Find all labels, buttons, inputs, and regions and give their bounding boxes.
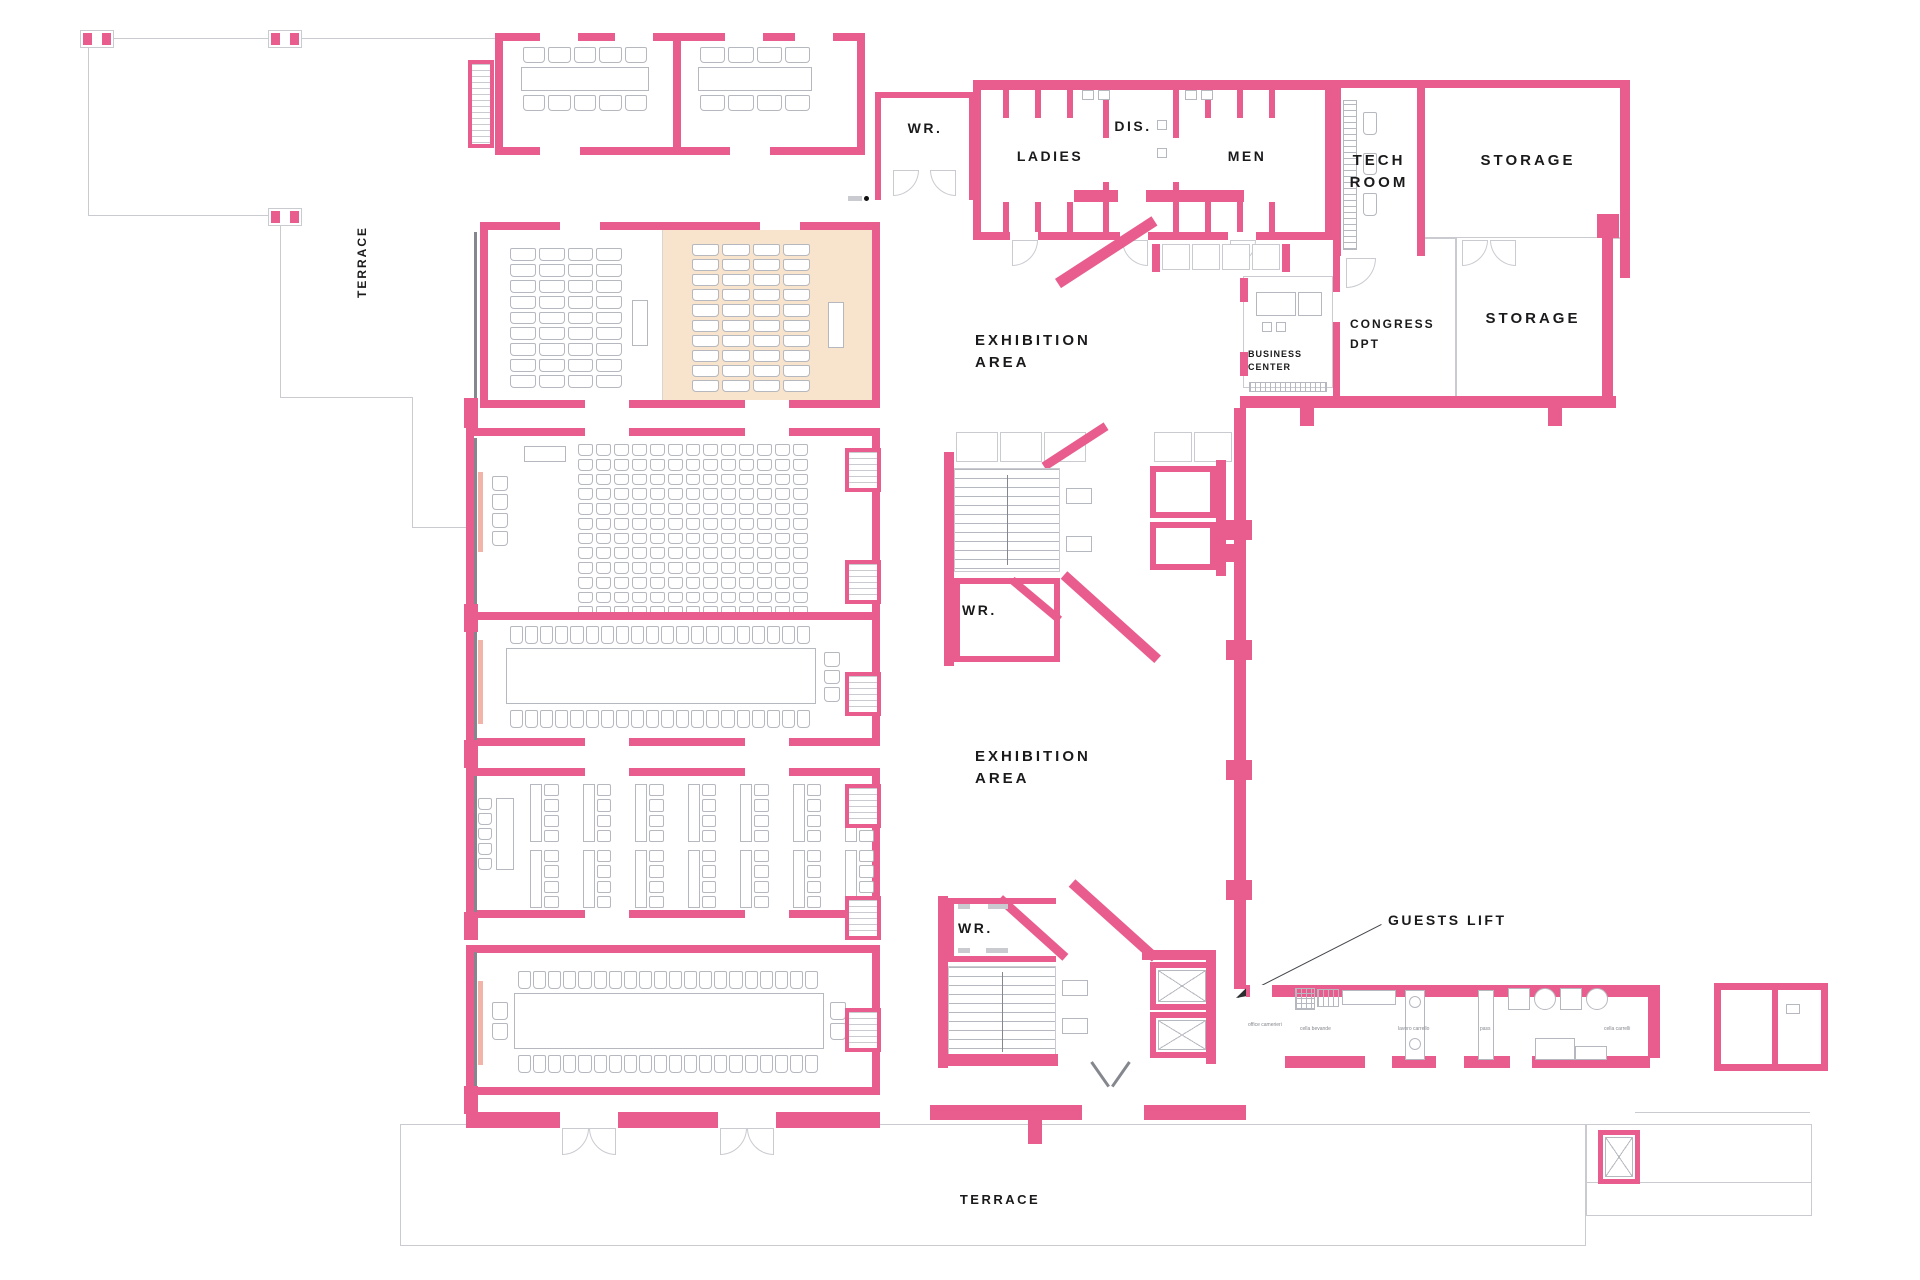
shape [859, 830, 874, 842]
desk-group [530, 784, 559, 842]
shape [649, 815, 664, 827]
wall-opening [745, 428, 789, 436]
wall-segment [464, 604, 478, 632]
shape [596, 562, 611, 574]
shape [703, 592, 718, 604]
shape [650, 533, 665, 545]
storage-right-label: STORAGE [1458, 308, 1608, 330]
shape [596, 518, 611, 530]
shape [785, 95, 810, 111]
service-niche [845, 560, 881, 604]
window-wall [474, 438, 477, 624]
shape: TECH [1333, 150, 1425, 172]
accent-strip [478, 640, 483, 724]
shape [767, 710, 780, 728]
shape [614, 503, 629, 515]
chair-row [518, 1055, 818, 1073]
elevator-shaft [1150, 466, 1216, 518]
shape [760, 971, 773, 989]
shape [807, 850, 822, 908]
shape [578, 577, 593, 589]
shape [692, 259, 719, 271]
chair-column [824, 652, 840, 702]
shape [646, 710, 659, 728]
shape [783, 289, 810, 301]
shape [649, 799, 664, 811]
shape [632, 474, 647, 486]
shape [859, 881, 874, 893]
shape [510, 343, 536, 356]
shape [631, 626, 644, 644]
wall-segment [1648, 997, 1660, 1058]
desk-band [530, 784, 874, 842]
desk-group [740, 850, 769, 908]
shape [767, 626, 780, 644]
shape [583, 850, 595, 908]
shape [650, 547, 665, 559]
desk-group [688, 784, 717, 842]
ladies-label: LADIES [1000, 146, 1100, 166]
shape [706, 710, 719, 728]
shape [614, 547, 629, 559]
terrace-edge [280, 215, 281, 398]
shape [599, 95, 621, 111]
shape [782, 710, 795, 728]
shape: EXHIBITION [975, 330, 1091, 352]
shape [614, 518, 629, 530]
room-wr-mid [954, 578, 1060, 662]
shape [702, 830, 717, 842]
elevator-guest-1 [1150, 962, 1214, 1010]
wall-segment [1142, 950, 1216, 960]
shape [688, 784, 700, 842]
shape [650, 577, 665, 589]
shape [539, 248, 565, 261]
shape [807, 799, 822, 811]
shape [703, 562, 718, 574]
shape [271, 211, 280, 223]
wall-segment [944, 452, 954, 666]
shape [596, 488, 611, 500]
gray-line [958, 948, 970, 953]
shape [728, 47, 753, 63]
shape [597, 784, 612, 796]
shape [721, 488, 736, 500]
wall-opening [585, 400, 629, 408]
floor-plan: TERRACE TERRACE [0, 0, 1920, 1280]
shape [609, 1055, 622, 1073]
exhibition-lower-label: EXHIBITIONAREA [975, 746, 1091, 790]
shape [722, 335, 749, 347]
terrace-edge [1635, 1112, 1810, 1113]
lobby-table [1066, 488, 1092, 504]
shape [700, 95, 725, 111]
shape [544, 850, 559, 862]
shape [775, 518, 790, 530]
shape [649, 865, 664, 877]
shape [597, 881, 612, 893]
shape [596, 264, 622, 277]
lectern [828, 302, 844, 348]
wall-stub [1028, 1120, 1042, 1144]
wall-opening [725, 33, 763, 41]
shape [632, 533, 647, 545]
shape [785, 47, 810, 63]
shape [510, 312, 536, 325]
terrace-edge [280, 397, 413, 398]
shape [523, 47, 545, 63]
shape [544, 830, 559, 842]
wall-segment [1035, 88, 1041, 118]
shape [654, 1055, 667, 1073]
chair-grid [578, 444, 808, 618]
shape [614, 562, 629, 574]
shape [649, 830, 664, 842]
desk [1256, 292, 1296, 316]
shape [722, 320, 749, 332]
shape [706, 626, 719, 644]
window-wall [474, 620, 477, 740]
shape [740, 850, 752, 908]
office-desk [521, 67, 649, 91]
closet [1222, 244, 1250, 270]
terrace-column-pair [268, 30, 302, 48]
shape [722, 274, 749, 286]
lobby-table [1062, 980, 1088, 996]
shape [702, 784, 717, 796]
shape [692, 244, 719, 256]
svc-carrelli-label: cella carrelli [1604, 1026, 1630, 1032]
service-niche [845, 1008, 881, 1052]
shape [599, 47, 621, 63]
service-niche [845, 672, 881, 716]
shape [478, 843, 492, 855]
shape [721, 459, 736, 471]
shape [632, 592, 647, 604]
wall-segment [1285, 1056, 1365, 1068]
shape [721, 562, 736, 574]
equipment [1317, 989, 1339, 1007]
shape [578, 971, 591, 989]
shape [722, 244, 749, 256]
lobby-table [1066, 536, 1092, 552]
shape [692, 320, 719, 332]
shape [614, 474, 629, 486]
shape [539, 264, 565, 277]
shape [596, 547, 611, 559]
shape: CENTER [1248, 361, 1302, 374]
shape [753, 335, 780, 347]
chair-column [492, 476, 508, 546]
shape [586, 710, 599, 728]
shape [807, 896, 822, 908]
shape [525, 710, 538, 728]
desk-group [583, 784, 612, 842]
shape [614, 459, 629, 471]
wall-opening [795, 33, 833, 41]
shape [783, 259, 810, 271]
shape [754, 784, 769, 842]
shape [703, 444, 718, 456]
fixture [1262, 322, 1272, 332]
shape: BUSINESS [1248, 348, 1302, 361]
shape [790, 971, 803, 989]
svc-pass-label: pass [1480, 1026, 1491, 1032]
shape [775, 592, 790, 604]
shape [676, 626, 689, 644]
wall-segment [673, 35, 681, 153]
shape [597, 850, 612, 862]
shape [721, 503, 736, 515]
wall-segment [1772, 990, 1778, 1064]
wall-segment [1240, 396, 1616, 408]
shape [596, 503, 611, 515]
sink [1185, 90, 1197, 100]
shape [721, 626, 734, 644]
room-service-right [1714, 983, 1828, 1071]
shape [721, 592, 736, 604]
shape [753, 274, 780, 286]
shape [548, 971, 561, 989]
shape [596, 327, 622, 340]
shape [290, 211, 299, 223]
shape [583, 784, 595, 842]
shape [492, 476, 508, 491]
shape [739, 444, 754, 456]
door-arc [1012, 240, 1038, 266]
shape [757, 503, 772, 515]
lobby-table [1062, 1018, 1088, 1034]
fixture [1409, 1038, 1421, 1050]
shape [596, 343, 622, 356]
gray-line [958, 904, 970, 909]
chair-row [700, 47, 810, 63]
shape [544, 881, 559, 893]
chair-grid [510, 248, 622, 388]
shape [632, 577, 647, 589]
wr-top-label: WR. [877, 118, 973, 138]
shape [686, 533, 701, 545]
shape [518, 1055, 531, 1073]
shape [492, 494, 508, 509]
shape [649, 850, 664, 862]
desk-group [530, 850, 559, 908]
shape [1363, 112, 1377, 135]
shape [597, 784, 612, 842]
shape [702, 865, 717, 877]
wall-segment [1597, 214, 1619, 238]
shape [570, 626, 583, 644]
door-leaf [1090, 1061, 1110, 1087]
wall-segment [1067, 202, 1073, 232]
closet [1162, 244, 1190, 270]
shape [596, 359, 622, 372]
shape [668, 577, 683, 589]
desk-group [635, 784, 664, 842]
shape [668, 562, 683, 574]
shape [555, 626, 568, 644]
shape [703, 488, 718, 500]
shape [807, 881, 822, 893]
svc-lavoro-label: lavoro carrello [1398, 1026, 1429, 1032]
chair-column [830, 1002, 846, 1040]
men-label: MEN [1212, 146, 1282, 166]
wall-opening [745, 910, 789, 918]
sink [1201, 90, 1213, 100]
shape [739, 533, 754, 545]
shape [616, 626, 629, 644]
shape [702, 850, 717, 908]
shape [492, 1023, 508, 1041]
shape [824, 652, 840, 667]
shape [597, 865, 612, 877]
desk [1298, 292, 1322, 316]
wall-opening [1118, 190, 1146, 202]
shape [639, 971, 652, 989]
shape [739, 518, 754, 530]
shape [544, 865, 559, 877]
shape [721, 518, 736, 530]
shape [668, 459, 683, 471]
table [1535, 1038, 1575, 1060]
guests-lift-label: GUESTS LIFT [1388, 910, 1507, 930]
shape [692, 365, 719, 377]
shape [757, 444, 772, 456]
elevator-terrace [1598, 1130, 1640, 1184]
chair-row [510, 626, 810, 644]
shape [632, 503, 647, 515]
shape [783, 304, 810, 316]
shape [478, 813, 492, 825]
shape [492, 531, 508, 546]
shape [686, 547, 701, 559]
shape [544, 784, 559, 796]
shape [721, 547, 736, 559]
dis-label: DIS. [1104, 116, 1162, 136]
shape [616, 710, 629, 728]
shape [668, 518, 683, 530]
wall-stub [1226, 760, 1252, 780]
shape [540, 710, 553, 728]
wall-segment [1067, 88, 1073, 118]
shape [530, 850, 542, 908]
shape [752, 626, 765, 644]
shape [783, 335, 810, 347]
shape [721, 710, 734, 728]
wall-opening [745, 738, 789, 746]
wall-opening [560, 1112, 618, 1128]
chair-row [523, 95, 647, 111]
exhibition-upper-label: EXHIBITIONAREA [975, 330, 1091, 374]
shape [793, 784, 805, 842]
shape [639, 1055, 652, 1073]
shape [596, 248, 622, 261]
shape [649, 881, 664, 893]
shape [692, 380, 719, 392]
shape [1158, 1020, 1206, 1050]
shape [632, 488, 647, 500]
shape [702, 799, 717, 811]
shape [596, 444, 611, 456]
terrace-column-pair [268, 208, 302, 226]
svc-bevande-label: cella bevande [1300, 1026, 1331, 1032]
shape [478, 858, 492, 870]
shape [596, 312, 622, 325]
shape [739, 459, 754, 471]
shape [594, 1055, 607, 1073]
terrace-edge [412, 527, 470, 528]
shape [692, 289, 719, 301]
shape [753, 259, 780, 271]
shape [1605, 1137, 1633, 1177]
shape [686, 518, 701, 530]
shape [737, 710, 750, 728]
shape [807, 850, 822, 862]
shape [568, 296, 594, 309]
shape [703, 577, 718, 589]
shape [510, 327, 536, 340]
shape: ROOM [1333, 172, 1425, 194]
shape [661, 626, 674, 644]
shape [563, 1055, 576, 1073]
wall-segment [1237, 202, 1243, 232]
wall-segment [1237, 88, 1243, 118]
shape [807, 815, 822, 827]
shape [757, 547, 772, 559]
shape [753, 320, 780, 332]
shape [805, 1055, 818, 1073]
shape [578, 518, 593, 530]
dishwasher [1586, 988, 1608, 1010]
shape [578, 459, 593, 471]
shape [830, 1023, 846, 1041]
shape [739, 488, 754, 500]
desk-group [688, 850, 717, 908]
shape [691, 710, 704, 728]
shape [530, 784, 542, 842]
shape [757, 533, 772, 545]
shape [632, 459, 647, 471]
closet [956, 432, 998, 462]
podium-table [496, 798, 514, 870]
shape [686, 459, 701, 471]
shape [721, 533, 736, 545]
wall-segment [464, 1086, 478, 1114]
shape [597, 815, 612, 827]
shape [703, 518, 718, 530]
shape [510, 280, 536, 293]
shape [745, 1055, 758, 1073]
shape [597, 896, 612, 908]
shape [609, 971, 622, 989]
shape [757, 488, 772, 500]
shape [775, 562, 790, 574]
gray-line [662, 230, 663, 400]
wall-stub [1226, 520, 1252, 540]
shape [807, 830, 822, 842]
shape [563, 971, 576, 989]
shape [510, 626, 523, 644]
business-label: BUSINESSCENTER [1248, 348, 1302, 374]
chair-column [478, 798, 492, 870]
shape [805, 971, 818, 989]
shape [684, 1055, 697, 1073]
shape [83, 33, 92, 45]
shape [757, 577, 772, 589]
shape [539, 343, 565, 356]
staircase [954, 468, 1060, 572]
shape [783, 274, 810, 286]
